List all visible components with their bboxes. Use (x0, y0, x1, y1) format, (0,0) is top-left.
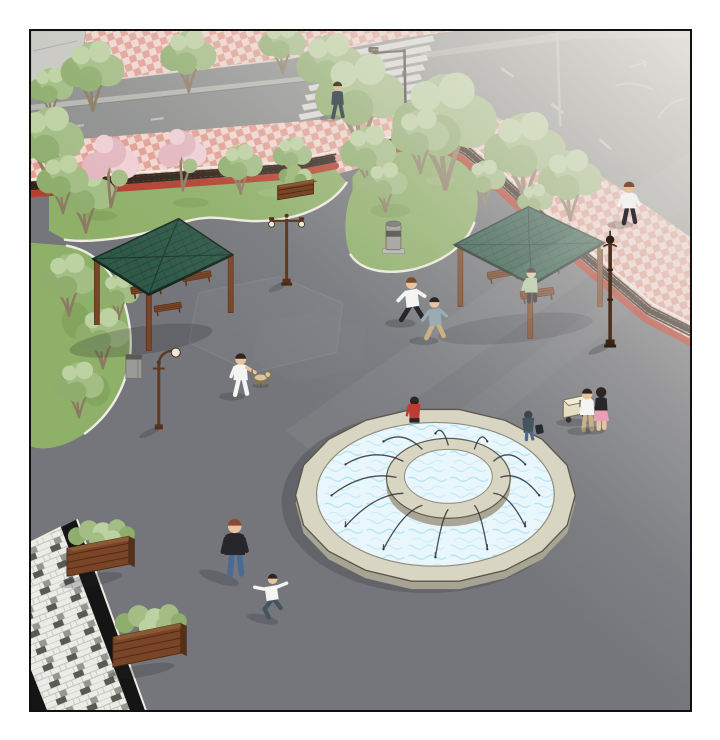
page-title: Aerial plaza illustration with circular … (0, 21, 1, 22)
lamp-globe (171, 348, 180, 357)
scene-canvas: Aerial comic-style illustration of a pub… (31, 31, 690, 710)
illustration-frame: Aerial comic-style illustration of a pub… (29, 29, 692, 712)
lamp-globe (299, 221, 305, 227)
fountain-inner-water (404, 449, 492, 503)
lamp-globe (269, 221, 275, 227)
trash-bin-box (126, 355, 142, 379)
page: Aerial plaza illustration with circular … (0, 0, 720, 740)
lamp-head (606, 235, 614, 243)
